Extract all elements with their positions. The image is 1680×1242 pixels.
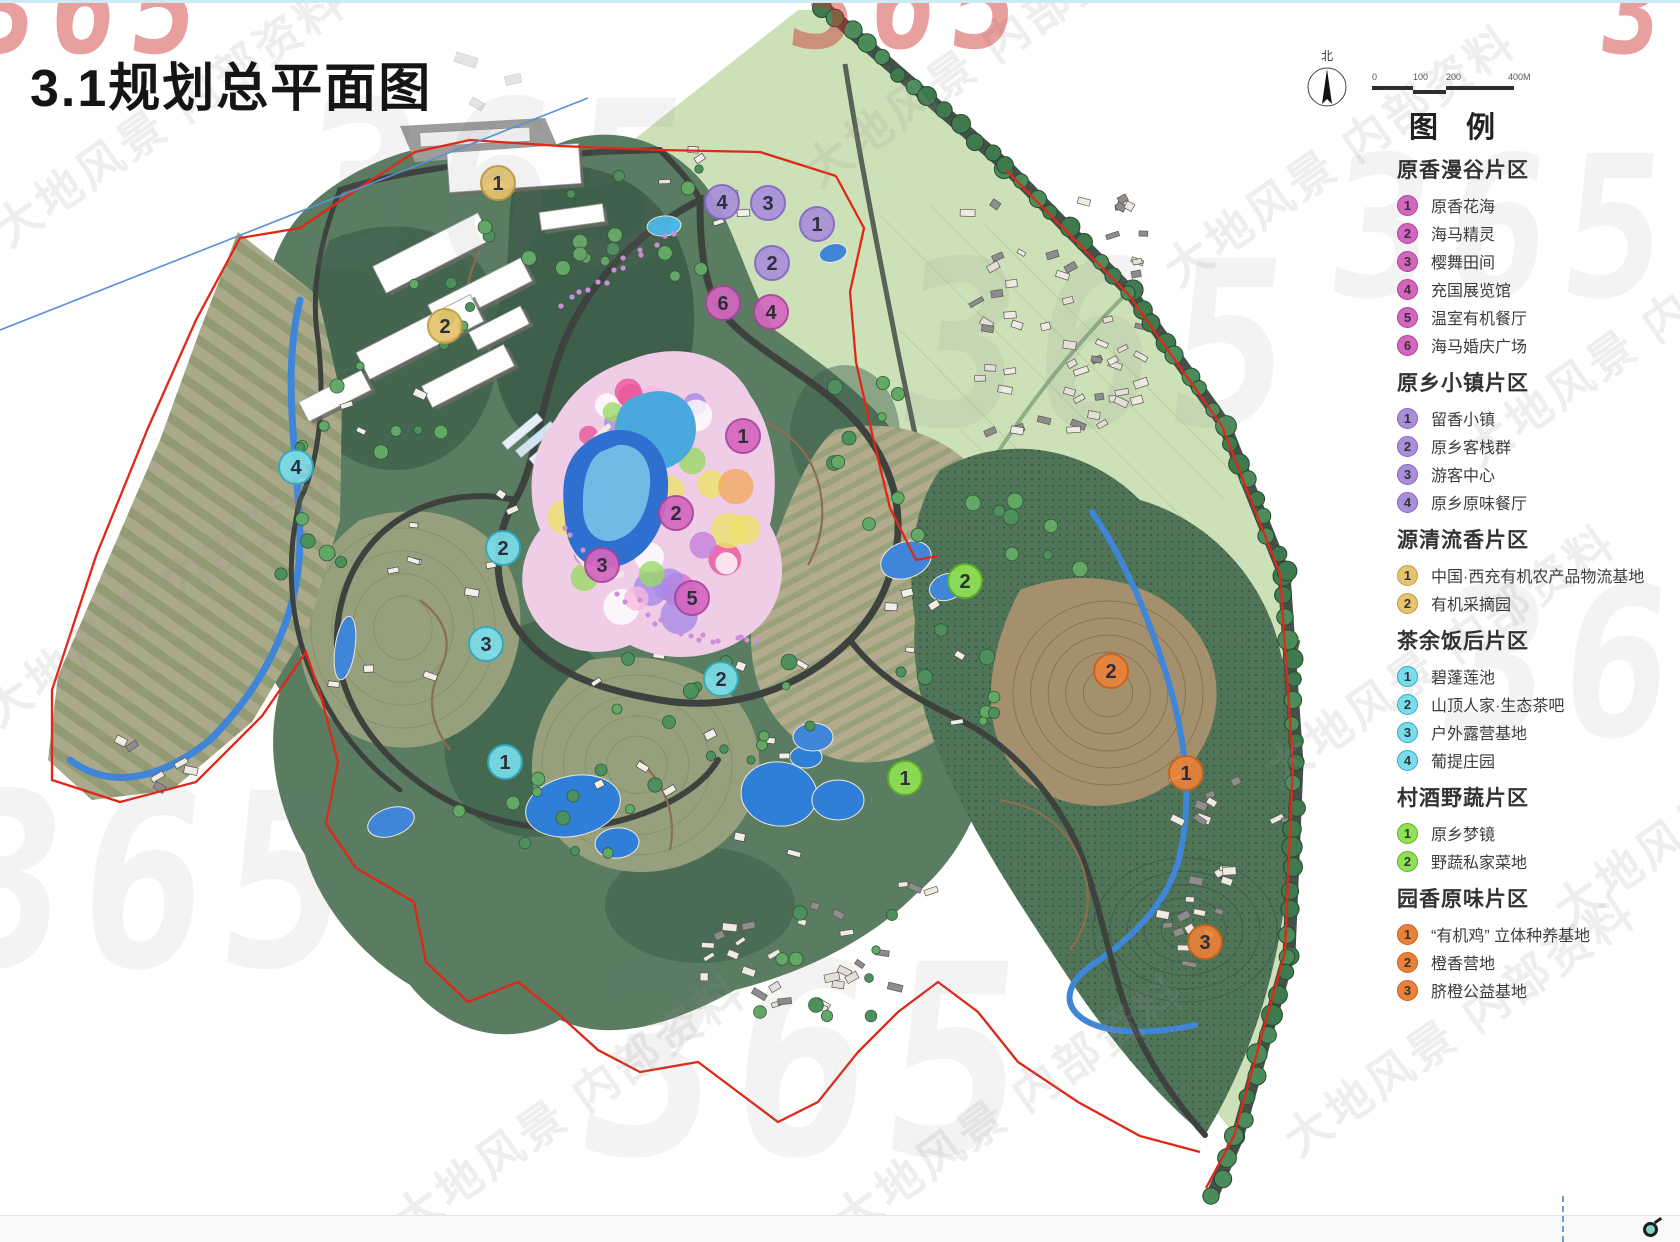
svg-text:2: 2 <box>497 538 508 560</box>
map-marker: 2 <box>486 531 520 565</box>
legend-item: 1原香花海 <box>1397 191 1670 219</box>
svg-text:5: 5 <box>686 588 697 610</box>
map-marker: 4 <box>754 295 788 329</box>
legend-item-label: 橙香营地 <box>1431 950 1495 974</box>
legend-item-label: 海马婚庆广场 <box>1431 333 1527 357</box>
svg-text:6: 6 <box>717 293 728 315</box>
legend-item: 6海马婚庆广场 <box>1397 331 1670 359</box>
legend-item: 3户外露营基地 <box>1397 718 1670 746</box>
map-marker: 1 <box>1169 756 1203 790</box>
legend-section-title: 原乡小镇片区 <box>1397 367 1670 397</box>
svg-text:4: 4 <box>290 457 302 479</box>
legend-item-label: 海马精灵 <box>1431 221 1495 245</box>
guide-line <box>1562 1196 1564 1242</box>
svg-text:1: 1 <box>499 752 510 774</box>
legend-item-number: 4 <box>1397 492 1418 513</box>
legend-item-number: 3 <box>1397 251 1418 272</box>
legend-item-label: 充国展览馆 <box>1431 277 1511 301</box>
legend-item: 2橙香营地 <box>1397 948 1670 976</box>
legend-item: 1留香小镇 <box>1397 404 1670 432</box>
svg-text:1: 1 <box>811 214 822 236</box>
legend-item: 2山顶人家·生态茶吧 <box>1397 690 1670 718</box>
legend-section-title: 园香原味片区 <box>1397 883 1670 913</box>
legend-item-label: 原乡原味餐厅 <box>1431 490 1527 514</box>
scale-tick: 200 <box>1446 72 1461 82</box>
north-label: 北 <box>1321 49 1333 63</box>
map-marker: 1 <box>888 761 922 795</box>
footer-strip <box>0 1215 1680 1242</box>
scale-tick: 0 <box>1372 72 1377 82</box>
legend-panel: 图 例 原香漫谷片区1原香花海2海马精灵3樱舞田间4充国展览馆5温室有机餐厅6海… <box>1395 104 1670 1004</box>
map-marker: 3 <box>1188 925 1222 959</box>
legend-item: 2原乡客栈群 <box>1397 432 1670 460</box>
legend-section: 原香漫谷片区1原香花海2海马精灵3樱舞田间4充国展览馆5温室有机餐厅6海马婚庆广… <box>1395 154 1670 359</box>
legend-item-label: 中国·西充有机农产品物流基地 <box>1431 563 1644 587</box>
legend-item-number: 4 <box>1397 750 1418 771</box>
legend-item-number: 4 <box>1397 279 1418 300</box>
map-marker: 2 <box>659 496 693 530</box>
legend-section-title: 源清流香片区 <box>1397 524 1670 554</box>
svg-text:3: 3 <box>762 193 773 215</box>
legend-item-number: 2 <box>1397 694 1418 715</box>
plan-page: 1234561234121223412123 大地风景 内部资料大地风景 内部资… <box>0 0 1680 1242</box>
svg-text:4: 4 <box>765 302 777 324</box>
legend-item-number: 2 <box>1397 593 1418 614</box>
svg-text:3: 3 <box>596 555 607 577</box>
map-marker: 1 <box>481 166 515 200</box>
legend-item: 1原乡梦镜 <box>1397 819 1670 847</box>
svg-text:1: 1 <box>1180 763 1191 785</box>
legend-item: 4充国展览馆 <box>1397 275 1670 303</box>
map-marker: 6 <box>706 286 740 320</box>
legend-item-label: “有机鸡” 立体种养基地 <box>1431 922 1590 946</box>
legend-section-title: 茶余饭后片区 <box>1397 625 1670 655</box>
map-marker: 4 <box>705 185 739 219</box>
legend-item: 2海马精灵 <box>1397 219 1670 247</box>
legend-item-number: 2 <box>1397 952 1418 973</box>
legend-item-number: 2 <box>1397 851 1418 872</box>
map-marker: 5 <box>675 581 709 615</box>
svg-text:2: 2 <box>439 316 450 338</box>
svg-text:3: 3 <box>480 634 491 656</box>
legend-item-label: 户外露营基地 <box>1431 720 1527 744</box>
legend-item-label: 温室有机餐厅 <box>1431 305 1527 329</box>
legend-item-number: 1 <box>1397 823 1418 844</box>
legend-item: 3游客中心 <box>1397 460 1670 488</box>
map-marker: 2 <box>704 662 738 696</box>
page-top-border <box>0 0 1680 3</box>
map-marker: 4 <box>279 450 313 484</box>
svg-text:4: 4 <box>716 192 728 214</box>
svg-text:2: 2 <box>670 503 681 525</box>
sketch-marks <box>454 52 522 111</box>
legend-section: 原乡小镇片区1留香小镇2原乡客栈群3游客中心4原乡原味餐厅 <box>1395 367 1670 516</box>
legend-item-label: 原乡客栈群 <box>1431 434 1511 458</box>
map-marker: 2 <box>1094 654 1128 688</box>
legend-item: 1碧蓬莲池 <box>1397 662 1670 690</box>
svg-text:1: 1 <box>899 768 910 790</box>
svg-text:2: 2 <box>1105 661 1116 683</box>
location-dot-icon[interactable] <box>1643 1222 1658 1237</box>
legend-item-label: 原乡梦镜 <box>1431 821 1495 845</box>
legend-item: 3脐橙公益基地 <box>1397 976 1670 1004</box>
legend-item-number: 2 <box>1397 436 1418 457</box>
legend-item-label: 野蔬私家菜地 <box>1431 849 1527 873</box>
scale-tick: 400M <box>1508 72 1531 82</box>
legend-item-number: 5 <box>1397 307 1418 328</box>
legend-item-number: 1 <box>1397 666 1418 687</box>
map-marker: 3 <box>751 186 785 220</box>
legend-item: 2野蔬私家菜地 <box>1397 847 1670 875</box>
legend-item-label: 有机采摘园 <box>1431 591 1511 615</box>
legend-item: 4葡提庄园 <box>1397 746 1670 774</box>
legend-item-number: 2 <box>1397 223 1418 244</box>
svg-text:2: 2 <box>766 253 777 275</box>
legend-item: 5温室有机餐厅 <box>1397 303 1670 331</box>
legend-item-label: 游客中心 <box>1431 462 1495 486</box>
legend-item-number: 3 <box>1397 980 1418 1001</box>
map-marker: 2 <box>755 246 789 280</box>
legend-item-number: 3 <box>1397 464 1418 485</box>
legend-item-number: 3 <box>1397 722 1418 743</box>
map-marker: 3 <box>469 627 503 661</box>
map-marker: 2 <box>948 564 982 598</box>
legend-item-number: 1 <box>1397 408 1418 429</box>
legend-item-number: 6 <box>1397 335 1418 356</box>
legend-section: 源清流香片区1中国·西充有机农产品物流基地2有机采摘园 <box>1395 524 1670 617</box>
svg-text:2: 2 <box>715 669 726 691</box>
legend-item-label: 脐橙公益基地 <box>1431 978 1527 1002</box>
legend-item-label: 原香花海 <box>1431 193 1495 217</box>
svg-text:2: 2 <box>959 571 970 593</box>
svg-text:1: 1 <box>492 173 503 195</box>
legend-section-title: 村酒野蔬片区 <box>1397 782 1670 812</box>
legend-item-label: 葡提庄园 <box>1431 748 1495 772</box>
legend-item-label: 留香小镇 <box>1431 406 1495 430</box>
map-marker: 1 <box>726 419 760 453</box>
map-marker: 2 <box>428 309 462 343</box>
legend-section: 村酒野蔬片区1原乡梦镜2野蔬私家菜地 <box>1395 782 1670 875</box>
svg-text:1: 1 <box>737 426 748 448</box>
legend-item: 2有机采摘园 <box>1397 589 1670 617</box>
page-title: 3.1规划总平面图 <box>30 46 432 121</box>
legend-item-label: 山顶人家·生态茶吧 <box>1431 692 1564 716</box>
legend-section-title: 原香漫谷片区 <box>1397 154 1670 184</box>
svg-text:3: 3 <box>1199 932 1210 954</box>
legend-title: 图 例 <box>1409 104 1670 146</box>
legend-item-label: 樱舞田间 <box>1431 249 1495 273</box>
legend-section: 茶余饭后片区1碧蓬莲池2山顶人家·生态茶吧3户外露营基地4葡提庄园 <box>1395 625 1670 774</box>
scale-bar: 0 100 200 400M <box>1372 72 1532 98</box>
map-marker: 1 <box>488 745 522 779</box>
north-arrow: 北 <box>1304 46 1350 112</box>
legend-item-label: 碧蓬莲池 <box>1431 664 1495 688</box>
legend-item-number: 1 <box>1397 565 1418 586</box>
legend-section: 园香原味片区1“有机鸡” 立体种养基地2橙香营地3脐橙公益基地 <box>1395 883 1670 1004</box>
legend-item: 4原乡原味餐厅 <box>1397 488 1670 516</box>
scale-tick: 100 <box>1413 72 1428 82</box>
legend-item: 1中国·西充有机农产品物流基地 <box>1397 561 1670 589</box>
legend-item: 3樱舞田间 <box>1397 247 1670 275</box>
map-marker: 3 <box>585 548 619 582</box>
map-marker: 1 <box>800 207 834 241</box>
legend-item: 1“有机鸡” 立体种养基地 <box>1397 920 1670 948</box>
legend-item-number: 1 <box>1397 924 1418 945</box>
legend-item-number: 1 <box>1397 195 1418 216</box>
